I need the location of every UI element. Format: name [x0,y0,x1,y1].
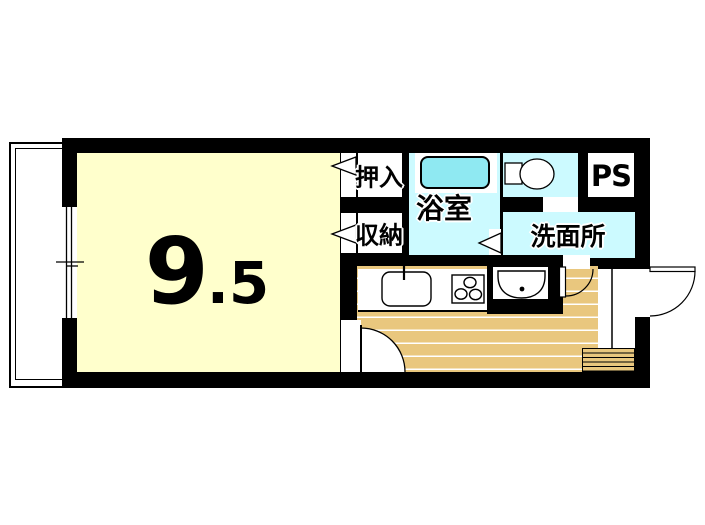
bathroom-label: 浴室 [416,187,472,227]
closet-label: 押入 [355,158,403,193]
kitchen-counter [358,269,487,312]
entrance-door-leaf [650,267,695,272]
room-size-label: 9.5 [145,226,269,318]
storage-label: 収納 [355,216,403,251]
bathroom-doorway [489,229,501,256]
window [62,207,77,318]
floor-plan: 9.5 押入 収納 浴室 洗面所 PS [0,0,705,525]
room-kitchen-doorway [341,320,361,372]
toilet-room-doorway [543,197,578,213]
shoe-step [582,348,635,372]
genkan-floor [598,269,635,348]
room-size-main: 9 [145,226,207,318]
toilet-room-floor [503,153,578,197]
entrance-doorway [635,269,650,317]
room-size-decimal: .5 [207,254,269,312]
entrance-door-swing [650,271,695,316]
balcony-inner-line [15,148,64,380]
washbasin-counter [493,267,548,299]
washroom-label: 洗面所 [530,217,605,253]
washroom-doorway [563,255,590,269]
pipe-space-label: PS [591,159,631,193]
